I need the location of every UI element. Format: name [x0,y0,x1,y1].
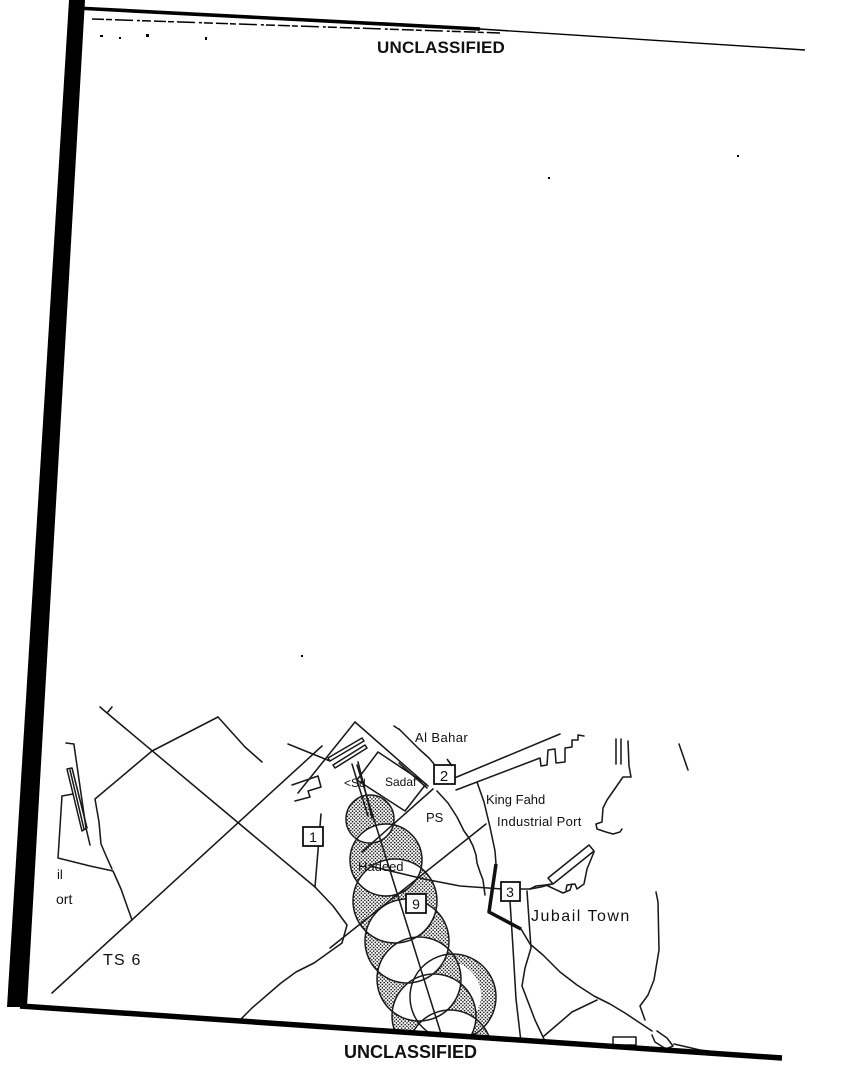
svg-text:UNCLASSIFIED: UNCLASSIFIED [377,38,505,57]
svg-text:Hadeed: Hadeed [358,859,404,874]
svg-text:TS 6: TS 6 [103,952,142,969]
svg-text:2: 2 [440,768,448,785]
svg-text:<Sd: <Sd [344,776,366,790]
svg-text:3: 3 [506,884,514,900]
svg-text:Sadaf: Sadaf [385,775,417,789]
svg-text:9: 9 [412,896,420,912]
svg-text:Al Bahar: Al Bahar [415,730,468,745]
svg-text:Jubail Town: Jubail Town [531,908,631,925]
svg-text:PS: PS [426,810,444,825]
svg-text:King Fahd: King Fahd [486,792,545,807]
svg-text:il: il [57,867,63,882]
svg-text:UNCLASSIFIED: UNCLASSIFIED [344,1042,477,1062]
svg-text:1: 1 [309,829,317,845]
svg-text:Industrial Port: Industrial Port [497,814,582,829]
svg-text:ort: ort [56,891,72,907]
